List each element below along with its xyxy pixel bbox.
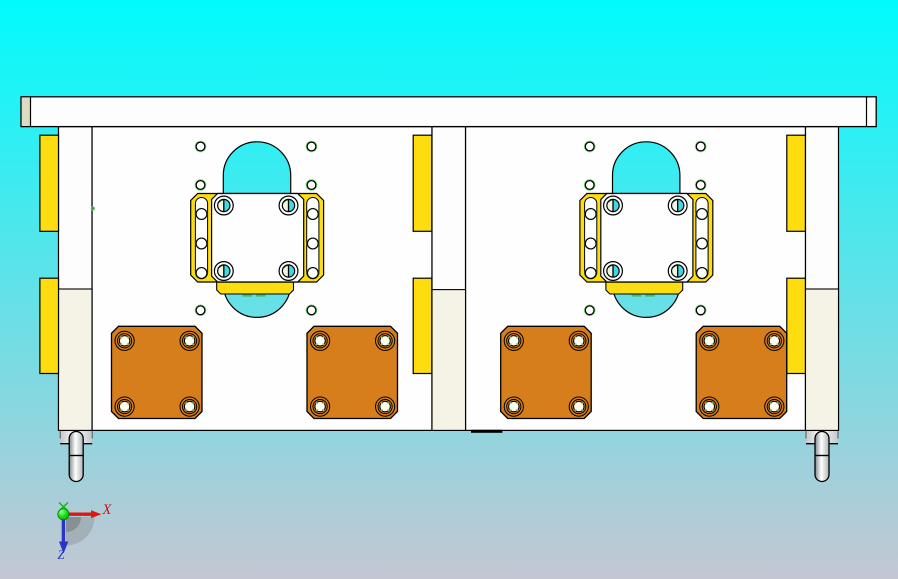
svg-text:X: X bbox=[102, 502, 113, 518]
svg-text:Z: Z bbox=[58, 548, 66, 562]
